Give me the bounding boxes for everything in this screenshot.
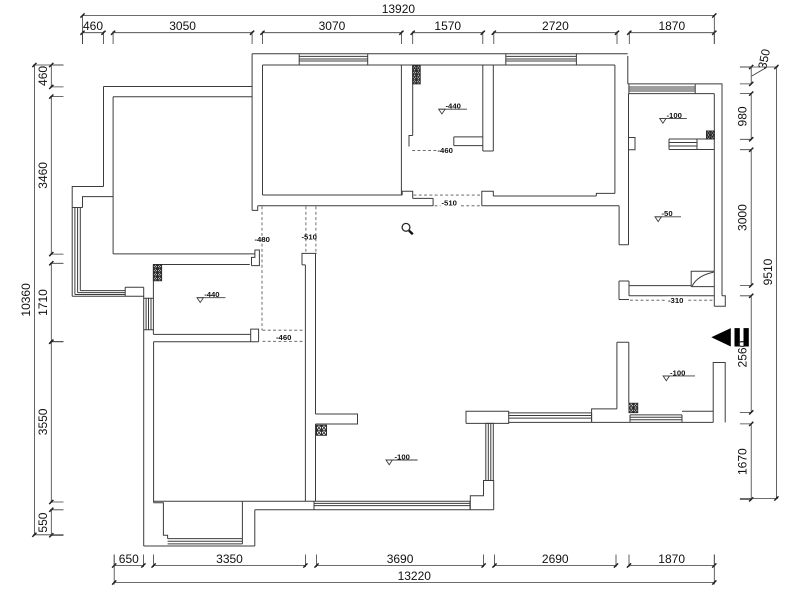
svg-text:2560: 2560 <box>736 340 750 367</box>
svg-text:10360: 10360 <box>19 283 33 317</box>
svg-text:13220: 13220 <box>398 569 432 583</box>
svg-text:-440: -440 <box>204 290 219 299</box>
svg-text:9510: 9510 <box>761 258 775 285</box>
svg-text:2690: 2690 <box>542 552 569 566</box>
svg-text:-460: -460 <box>438 146 453 155</box>
svg-text:-510: -510 <box>442 199 457 208</box>
svg-text:3690: 3690 <box>387 552 414 566</box>
svg-text:13920: 13920 <box>382 2 416 16</box>
svg-text:-310: -310 <box>668 296 683 305</box>
svg-text:460: 460 <box>36 66 50 86</box>
svg-text:-50: -50 <box>662 209 673 218</box>
svg-text:3460: 3460 <box>36 162 50 189</box>
svg-text:-100: -100 <box>667 111 682 120</box>
svg-text:-100: -100 <box>395 452 410 461</box>
svg-text:1710: 1710 <box>36 289 50 316</box>
svg-text:1870: 1870 <box>658 19 685 33</box>
svg-text:-100: -100 <box>670 368 685 377</box>
svg-text:-480: -480 <box>255 235 270 244</box>
svg-text:3550: 3550 <box>36 408 50 435</box>
svg-text:3350: 3350 <box>216 552 243 566</box>
svg-text:1870: 1870 <box>658 552 685 566</box>
svg-text:650: 650 <box>119 552 139 566</box>
svg-text:3000: 3000 <box>736 204 750 231</box>
svg-text:1670: 1670 <box>736 448 750 475</box>
svg-text:-510: -510 <box>302 233 317 242</box>
svg-text:-460: -460 <box>276 333 291 342</box>
svg-text:550: 550 <box>36 512 50 532</box>
svg-text:980: 980 <box>736 106 750 126</box>
svg-text:2720: 2720 <box>542 19 569 33</box>
svg-text:3050: 3050 <box>169 19 196 33</box>
svg-text:1570: 1570 <box>434 19 461 33</box>
svg-text:3070: 3070 <box>319 19 346 33</box>
svg-text:460: 460 <box>83 19 103 33</box>
svg-text:-440: -440 <box>446 102 461 111</box>
